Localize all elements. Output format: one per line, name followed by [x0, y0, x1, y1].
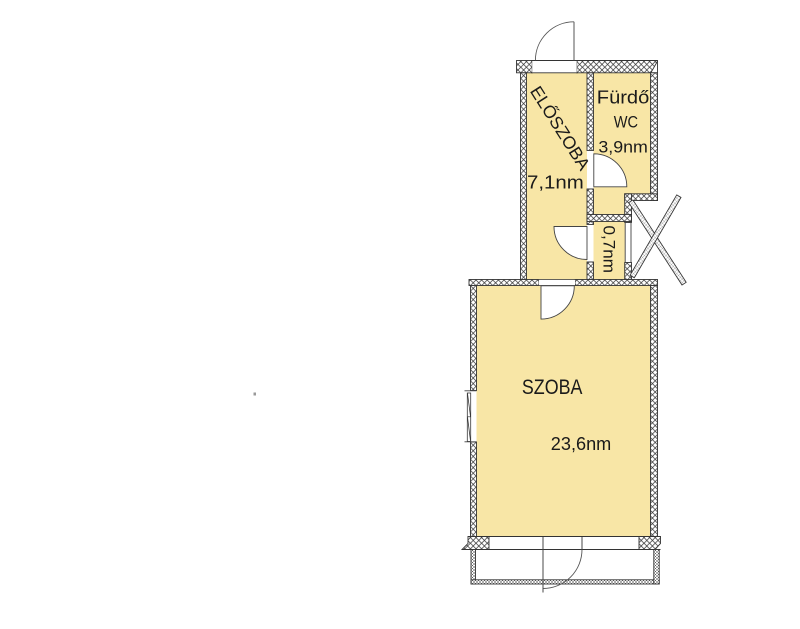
svg-text:Fürdő: Fürdő — [597, 88, 650, 108]
svg-text:SZOBA: SZOBA — [522, 376, 583, 399]
svg-text:7,1nm: 7,1nm — [527, 173, 584, 193]
svg-text:WC: WC — [614, 113, 638, 131]
svg-text:0,7nm: 0,7nm — [600, 226, 619, 274]
svg-text:3,9nm: 3,9nm — [598, 138, 648, 157]
svg-text:23,6nm: 23,6nm — [551, 434, 612, 454]
